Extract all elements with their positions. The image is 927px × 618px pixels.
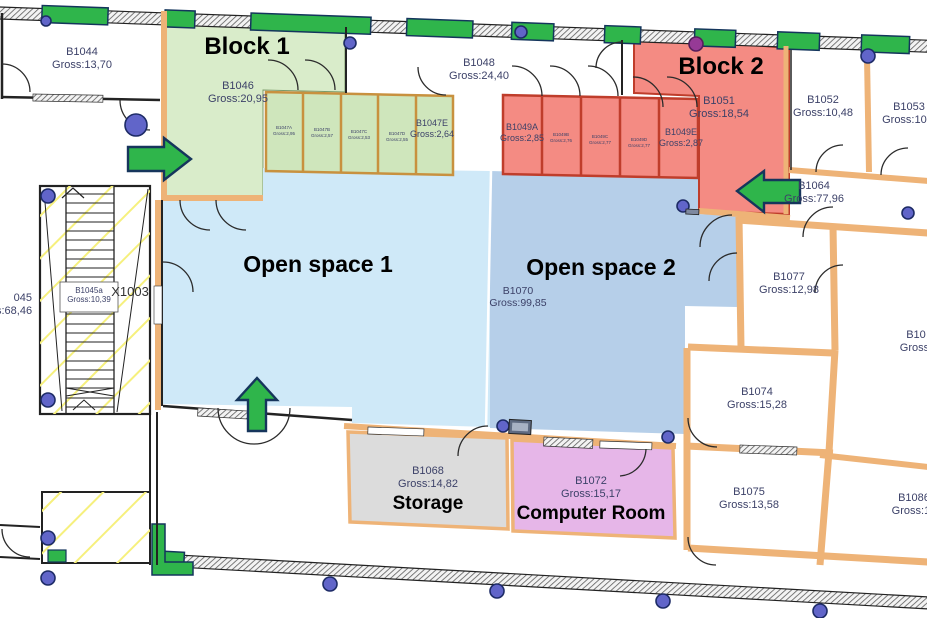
room-label-b1049d: B1049DGross:2,77 [628,137,650,149]
room-label-b1064: B1064Gross:77,96 [784,180,844,206]
projector-icon [509,419,532,434]
room-label-b1049c: B1049CGross:2,77 [589,134,611,146]
room-label-x1003: X1003 [111,284,149,299]
bottom-left-room [42,492,150,563]
room-name-computer-room: Computer Room [517,503,666,525]
floor-plan-drawing [0,0,927,618]
room-label-b1051: B1051Gross:18,54 [689,95,749,121]
room-label-b1049b: B1049BGross:2,76 [550,132,572,144]
purple-dot [689,37,703,51]
room-label-b1075: B1075Gross:13,58 [719,486,779,512]
room-label-b1070: B1070Gross:99,85 [489,285,546,310]
room-label-b1044: B1044Gross:13,70 [52,46,112,72]
room-name-storage: Storage [393,493,464,515]
room-label-b1047d: B1047DGross:2,55 [386,131,408,143]
room-label-b1047b: B1047BGross:2,57 [311,127,333,139]
room-label-b1077: B1077Gross:12,98 [759,271,819,297]
room-label-b1047e: B1047EGross:2,64 [410,118,454,139]
room-label-b1047a: B1047AGross:2,95 [273,125,295,137]
zone-title-open-space-1: Open space 1 [243,251,393,278]
zone-title-block2: Block 2 [678,53,763,81]
floor-plan: Block 1 Block 2 Open space 1 Open space … [0,0,927,618]
room-label-b1049a: B1049AGross:2,85 [500,122,544,143]
window-segment [251,13,372,34]
room-label-b1072: B1072Gross:15,17Computer Room [517,475,666,525]
green-corner-wall [152,524,193,575]
room-label-b1045-edge: 045s:68,46 [0,292,32,318]
room-label-b1053: B1053Gross:10,4 [882,101,927,127]
bottom-window-band [158,551,927,612]
room-label-b1045a: B1045aGross:10,39 [67,286,111,305]
room-label-b1074: B1074Gross:15,28 [727,386,787,412]
device-icon [686,209,699,215]
zone-title-open-space-2: Open space 2 [526,254,676,281]
room-label-b1086: B1086Gross:19 [892,492,927,518]
window-segment [165,10,196,28]
room-label-b1046: B1046Gross:20,95 [208,80,268,106]
room-label-b1068: B1068Gross:14,82Storage [393,465,464,515]
room-label-b10-edge: B10Gross: [900,329,927,355]
room-label-b1048: B1048Gross:24,40 [449,57,509,83]
window-segment [406,19,473,38]
window-segment [48,550,66,562]
zone-open-space-1 [163,168,490,427]
zone-title-block1: Block 1 [204,33,289,61]
room-label-b1052: B1052Gross:10,48 [793,94,853,120]
room-label-b1047c: B1047CGross:2,53 [348,129,370,141]
room-label-b1049e: B1049EGross:2,87 [659,127,703,148]
